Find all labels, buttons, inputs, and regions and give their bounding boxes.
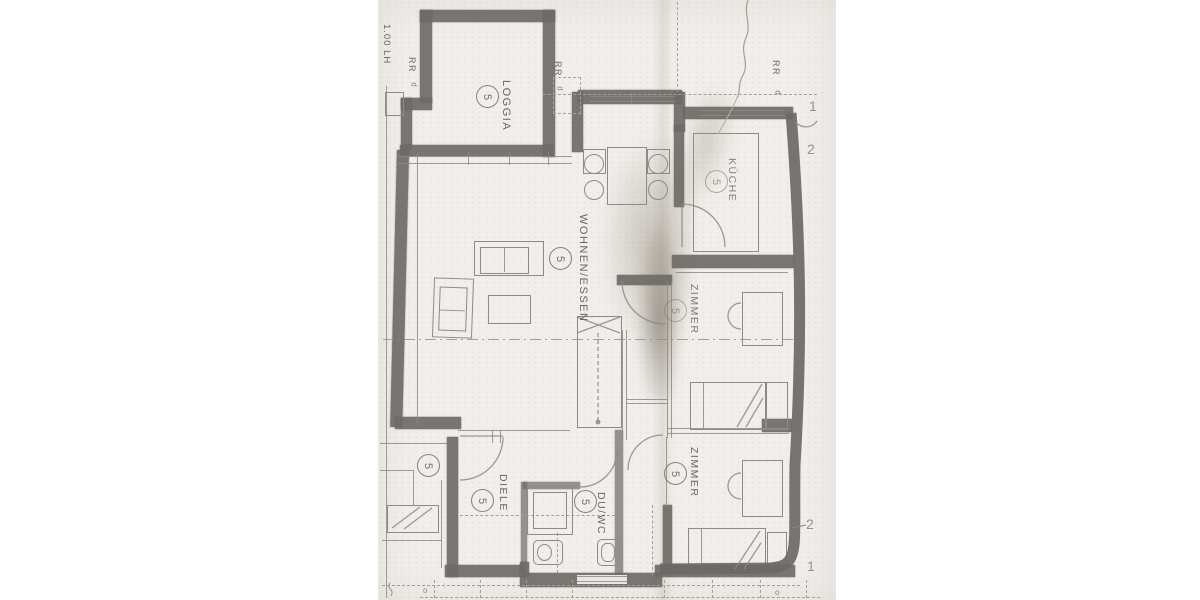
bed-blanket-fold: [737, 384, 763, 427]
unit-circle-loggia: 5: [476, 85, 499, 108]
rr-label-sub: d: [410, 82, 419, 86]
room-label-loggia: LOGGIA: [500, 80, 512, 131]
room-label-diele: DIELE: [497, 474, 509, 512]
survey-mark: o: [775, 588, 779, 597]
rr-label-sub: d: [556, 86, 565, 90]
unit-circle-du-wc: 5: [574, 490, 597, 513]
unit-circle-stairwell: 5: [417, 454, 440, 477]
edge-number: 1: [807, 558, 815, 574]
survey-squiggle: [389, 583, 392, 596]
desk-chair-north: [728, 303, 741, 329]
rr-label-sub: d: [774, 90, 783, 94]
edge-number: 2: [806, 516, 814, 532]
door-arc-south-room: [628, 435, 663, 470]
leader-line: [795, 121, 817, 127]
rr-label: RR: [407, 57, 417, 73]
edge-number: 1: [809, 98, 817, 114]
unit-circle-zimmer-nord: 5: [664, 299, 687, 322]
unit-circle-zimmer-sued: 5: [664, 462, 687, 485]
door-arc-bath: [580, 451, 617, 487]
scanned-floorplan-page: LOGGIA KÜCHE WOHNEN/ESSEN ZIMMER ZIMMER …: [0, 0, 1200, 600]
crease-squiggle-faint: [718, 98, 737, 134]
desk-chair-south: [728, 473, 741, 499]
room-label-wohnen-essen: WOHNEN/ESSEN: [577, 214, 589, 322]
crease-squiggle: [737, 0, 748, 98]
rr-label: RR: [771, 60, 781, 76]
unit-circle-wohnen: 5: [549, 247, 572, 270]
unit-circle-kueche: 5: [705, 170, 728, 193]
room-label-zimmer-nord: ZIMMER: [688, 284, 700, 334]
parapet-height-label: 1.00 LH: [381, 24, 392, 64]
rr-label: RR: [553, 61, 563, 77]
door-arc-hall: [622, 281, 665, 324]
unit-circle-diele: 5: [471, 489, 494, 512]
room-label-zimmer-sued: ZIMMER: [688, 447, 700, 497]
wardrobe-knob: [596, 420, 601, 425]
edge-number: 2: [807, 141, 815, 157]
door-arc-kitchen: [682, 204, 725, 247]
stair-diagonals: [392, 507, 432, 529]
survey-mark: o: [423, 586, 427, 595]
